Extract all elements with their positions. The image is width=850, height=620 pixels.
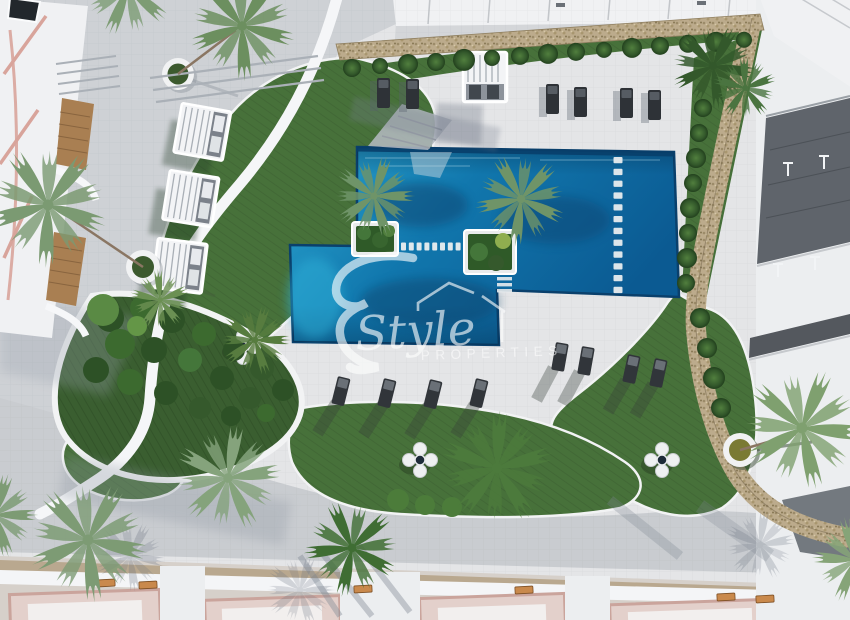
wooden-bench	[515, 586, 533, 594]
building-divider	[160, 566, 205, 620]
bush	[690, 124, 708, 142]
stepping-stone	[432, 243, 437, 251]
bush	[651, 37, 669, 55]
bush	[686, 148, 706, 168]
lounger-pad	[379, 80, 389, 88]
pergola-cabana	[162, 170, 219, 227]
stepping-stone	[614, 181, 623, 187]
bush	[677, 274, 695, 292]
bush	[703, 367, 725, 389]
bush	[427, 53, 445, 71]
stepping-stone	[401, 243, 406, 251]
bush	[677, 248, 697, 268]
bush	[694, 99, 712, 117]
stepping-stone	[409, 243, 414, 251]
bush	[372, 58, 388, 74]
garden-bush	[178, 348, 202, 372]
stepping-stone	[614, 240, 623, 246]
bush	[415, 495, 435, 515]
pool-step	[497, 283, 512, 286]
lounger-pad	[622, 90, 632, 98]
scene-canvas: Style PROPERTIES	[0, 0, 850, 620]
lounger-shadow	[539, 87, 547, 117]
bush	[511, 47, 529, 65]
pergola-shadow	[435, 103, 483, 145]
glass-canopy	[8, 0, 40, 22]
lounger-shadow	[613, 91, 621, 121]
bush	[343, 59, 361, 77]
garden-bush	[83, 357, 109, 383]
lounger-shadow	[567, 90, 575, 120]
garden-bush	[141, 337, 167, 363]
bush	[711, 398, 731, 418]
bush	[567, 43, 585, 61]
stepping-stone	[614, 169, 623, 175]
building-divider	[565, 576, 610, 620]
stepping-stone	[448, 243, 453, 251]
bush	[684, 174, 702, 192]
pergola-cabana	[173, 103, 231, 161]
lounger-pad	[576, 89, 586, 97]
lounger-pad	[408, 81, 418, 89]
lounger-shadow	[370, 81, 378, 111]
pool-planter-island	[352, 222, 398, 256]
pool-planter-island	[464, 230, 516, 274]
lounger-shadow	[641, 93, 649, 123]
stepping-stone	[614, 204, 623, 210]
stepping-stone	[614, 263, 623, 269]
bush	[398, 54, 418, 74]
bush	[484, 50, 500, 66]
garden-bush	[189, 397, 211, 419]
garden-bush	[87, 294, 119, 326]
stepping-stone	[614, 192, 623, 198]
lounger-pad	[650, 92, 660, 100]
stepping-stone	[614, 251, 623, 257]
pool-step	[497, 277, 512, 280]
bush	[697, 338, 717, 358]
stepping-stone	[614, 287, 623, 293]
garden-bush	[117, 369, 143, 395]
bush	[679, 224, 697, 242]
bush	[442, 497, 462, 517]
wooden-bench	[139, 581, 157, 589]
garden-bush	[257, 404, 275, 422]
pool-step	[497, 289, 512, 292]
bush	[736, 32, 752, 48]
garden-bush	[192, 322, 216, 346]
bush	[680, 198, 700, 218]
garden-bush	[221, 406, 241, 426]
bush	[453, 49, 475, 71]
stepping-stone	[456, 243, 461, 251]
bush	[596, 42, 612, 58]
wooden-bench	[717, 593, 735, 601]
wooden-bench	[756, 595, 774, 603]
lounger-pad	[548, 86, 558, 94]
bush	[538, 44, 558, 64]
stepping-stone	[417, 243, 422, 251]
bush	[690, 308, 710, 328]
stepping-stone	[440, 243, 445, 251]
garden-bush	[272, 379, 294, 401]
stepping-stone	[614, 228, 623, 234]
stepping-stone	[424, 243, 429, 251]
garden-bush	[239, 387, 261, 409]
garden-bush	[210, 366, 234, 390]
stepping-stone	[614, 157, 623, 163]
garden-bush	[154, 381, 178, 405]
stepping-stone	[614, 216, 623, 222]
aerial-render-scene: Style PROPERTIES	[0, 0, 850, 620]
stepping-stone	[614, 275, 623, 281]
lounger-pad	[582, 348, 593, 359]
bush	[387, 489, 409, 511]
bush	[622, 38, 642, 58]
terrace	[757, 98, 850, 264]
lounger-shadow	[399, 82, 407, 112]
